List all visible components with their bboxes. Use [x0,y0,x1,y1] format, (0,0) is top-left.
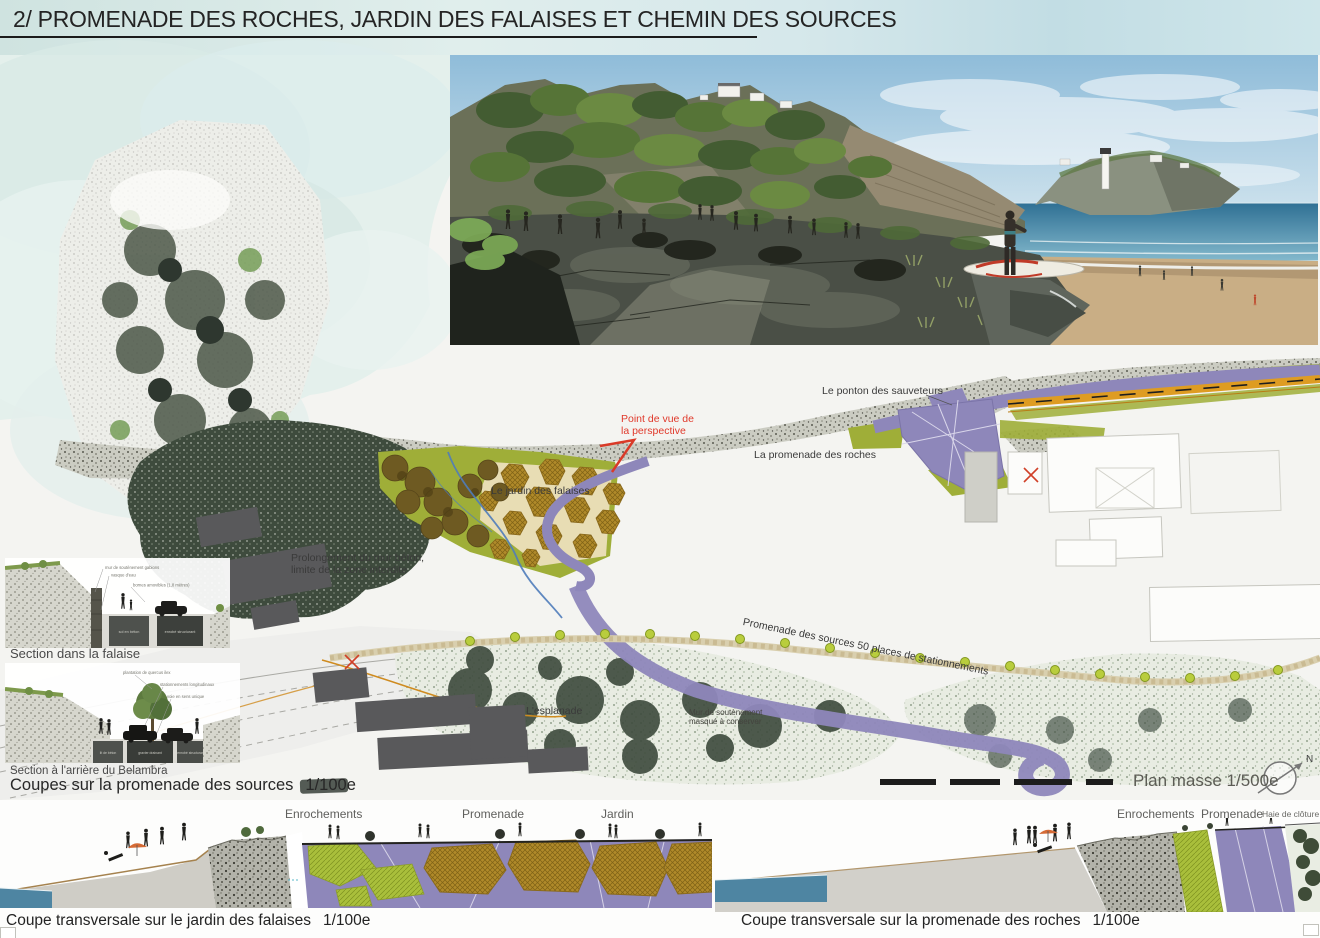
cross-section-roches [715,818,1320,912]
label-prolongement-line2: limite de la zone interdite [291,565,424,577]
note-plantation: plantation de quercus ilex [123,670,171,675]
block-label: sol en béton [119,630,140,634]
label-esplanade: L'esplanade [526,706,582,718]
deck-silhouettes [328,822,701,841]
corner-box-left [0,927,16,938]
caption-coupe-roches: Coupe transversale sur la promenade des … [741,912,1140,930]
label-point-de-vue-line2: la perspective [621,426,694,438]
cross-section-jardin [0,820,712,910]
perspective-photo [450,55,1318,345]
label-mur-line1: Mur de soutènement [689,708,762,717]
note-gabions: mur de soutènement gabions [105,565,159,570]
caption-coupes-sources-scale: 1/100e [305,776,355,794]
label-promenade-roches: La promenade des roches [754,450,876,462]
label-ponton-sauveteurs: Le ponton des sauveteurs [822,386,943,398]
corner-box-right [1303,924,1319,936]
caption-coupe-jardin: Coupe transversale sur le jardin des fal… [6,912,370,930]
block-label: enrobé structurant [165,630,197,634]
title-rule [0,36,757,38]
caption-coupe-jardin-scale: 1/100e [323,912,370,929]
label-haie-cloture: Haie de clôture [1262,809,1319,819]
caption-coupe-jardin-text: Coupe transversale sur le jardin des fal… [6,912,311,929]
section-falaise: sol en béton enrobé structurant mur de s… [5,558,230,648]
caption-coupe-roches-text: Coupe transversale sur la promenade des … [741,912,1080,929]
label-enrochements-right: Enrochements [1117,807,1194,821]
caption-coupes-sources-text: Coupes sur la promenade des sources [10,776,293,794]
label-enrochements-left: Enrochements [285,807,362,821]
caption-coupes-sources: Coupes sur la promenade des sources1/100… [10,776,356,795]
label-promenade-left: Promenade [462,807,524,821]
label-jardin-left: Jardin [601,807,634,821]
block-label: enrobé structurant [177,751,205,755]
presentation-board: sol en béton enrobé structurant mur de s… [0,0,1320,938]
label-jardin-falaises: Le jardin des falaises [491,486,590,498]
label-mur-line2: masqué à conserver [689,717,762,726]
label-point-de-vue: Point de vue de la perspective [621,414,694,438]
people-silhouettes [104,823,186,862]
label-mur-soutenement: Mur de soutènement masqué à conserver [689,708,762,726]
note-voie: voie en sens unique [167,694,205,699]
label-plan-masse: Plan masse 1/500e [1133,771,1279,791]
label-promenade-right: Promenade [1201,807,1263,821]
note-stationnements: stationnements longitudinaux [160,682,215,687]
note-vasque: vasque d'eau [111,573,136,578]
section-belambra: lit de béton gravier drainant enrobé str… [5,663,240,763]
note-bornes: bornes amovibles (1,8 mètres) [133,583,190,588]
page-title: 2/ PROMENADE DES ROCHES, JARDIN DES FALA… [13,6,896,33]
caption-coupe-roches-scale: 1/100e [1092,912,1139,929]
block-label: lit de béton [100,751,117,755]
label-north: N [1306,754,1313,765]
caption-section-falaise: Section dans la falaise [10,646,140,661]
block-label: gravier drainant [138,751,162,755]
label-prolongement-mur: Prolongement du mur béton, limite de la … [291,553,424,577]
